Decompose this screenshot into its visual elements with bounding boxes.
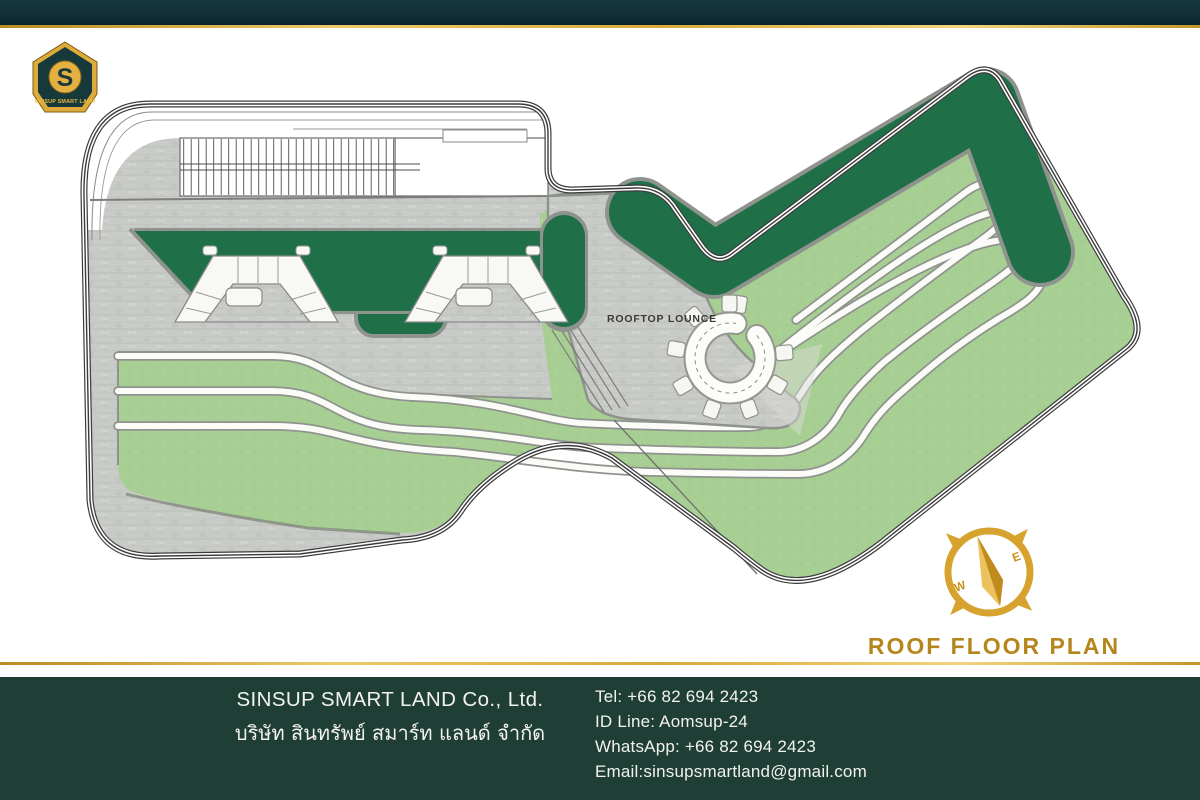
logo-caption: SINSUP SMART LAND bbox=[35, 99, 96, 105]
top-bar bbox=[0, 0, 1200, 25]
footer-gap bbox=[0, 665, 1200, 677]
contact-email: Email:sinsupsmartland@gmail.com bbox=[595, 759, 867, 784]
contact-block: Tel: +66 82 694 2423 ID Line: Aomsup-24 … bbox=[595, 684, 867, 784]
company-name-en: SINSUP SMART LAND Co., Ltd. bbox=[168, 688, 612, 712]
lounge-label: ROOFTOP LOUNCE bbox=[607, 313, 717, 325]
company-name-th: บริษัท สินทรัพย์ สมาร์ท แลนด์ จำกัด bbox=[168, 717, 612, 749]
footer: SINSUP SMART LAND Co., Ltd. บริษัท สินทร… bbox=[0, 677, 1200, 800]
contact-id-line: ID Line: Aomsup-24 bbox=[595, 709, 867, 734]
logo-monogram: S bbox=[57, 64, 74, 92]
compass-icon: W E bbox=[942, 525, 1036, 619]
contact-tel: Tel: +66 82 694 2423 bbox=[595, 684, 867, 709]
plan-title: ROOF FLOOR PLAN bbox=[868, 633, 1120, 659]
contact-whatsapp: WhatsApp: +66 82 694 2423 bbox=[595, 734, 867, 759]
company-logo: S SINSUP SMART LAND bbox=[33, 42, 97, 112]
page: ROOFTOP LOUNCE S SINSUP SMART LAND bbox=[0, 0, 1200, 800]
company-block: SINSUP SMART LAND Co., Ltd. บริษัท สินทร… bbox=[168, 688, 612, 749]
staircase bbox=[180, 130, 548, 196]
plan-canvas: ROOFTOP LOUNCE S SINSUP SMART LAND bbox=[0, 28, 1200, 662]
roof-floor-plan-drawing: ROOFTOP LOUNCE S SINSUP SMART LAND bbox=[0, 28, 1200, 662]
